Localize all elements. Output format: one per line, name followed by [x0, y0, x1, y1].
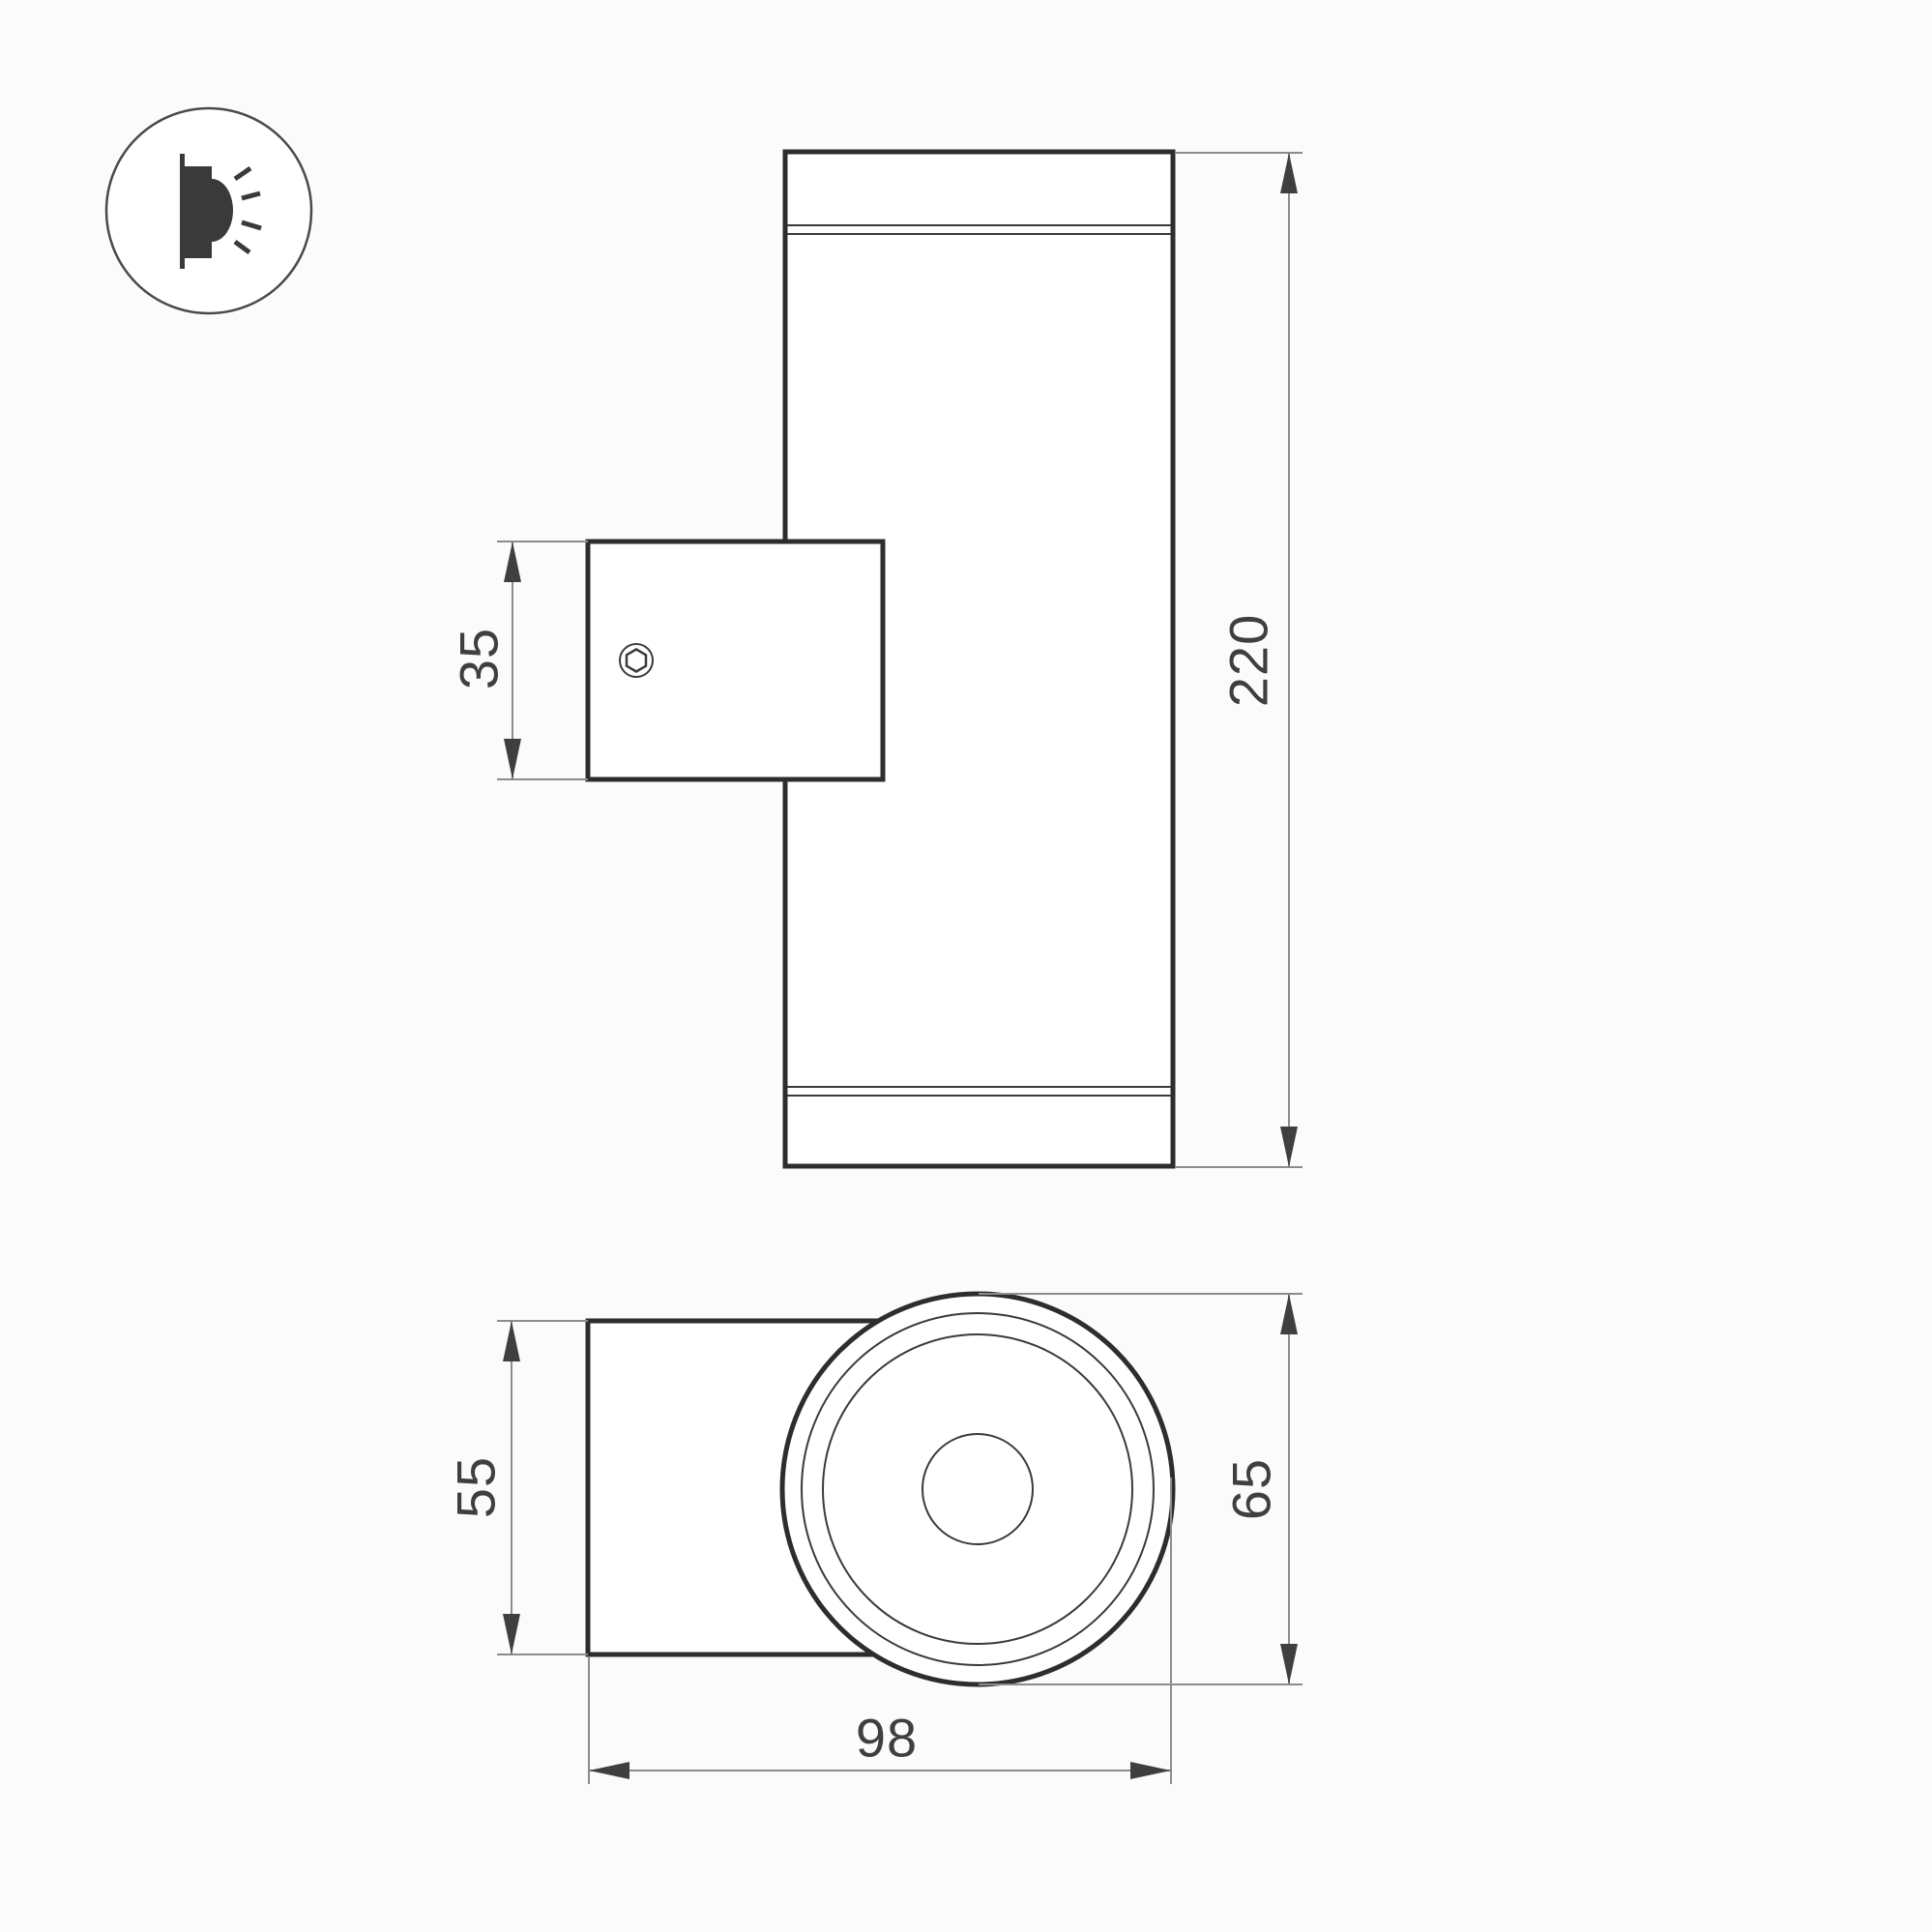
dimension-bracket-depth: 55: [446, 1321, 589, 1654]
arrowhead-down: [503, 1614, 520, 1654]
arrowhead-right: [1130, 1762, 1171, 1779]
dimension-body-height: 220: [1175, 153, 1303, 1167]
icon-wall-line: [180, 154, 185, 269]
technical-drawing-canvas: 35 220 55 65: [0, 0, 1932, 1932]
arrowhead-up: [1280, 153, 1298, 193]
dimension-value-65: 65: [1221, 1458, 1282, 1520]
arrowhead-left: [589, 1762, 629, 1779]
arrowhead-up: [504, 542, 521, 582]
dimension-bracket-height: 35: [449, 542, 589, 779]
arrowhead-down: [1280, 1127, 1298, 1167]
hex-screw-icon: [620, 644, 653, 677]
dimension-value-55: 55: [446, 1456, 507, 1518]
icon-lamp-body: [185, 166, 212, 258]
lamp-cylinder-top-outer: [782, 1294, 1173, 1684]
top-view: [588, 1294, 1173, 1684]
dimension-value-98: 98: [856, 1708, 918, 1769]
arrowhead-up: [503, 1321, 520, 1361]
arrowhead-down: [1280, 1644, 1298, 1684]
wall-light-icon: [106, 108, 311, 313]
arrowhead-up: [1280, 1294, 1298, 1334]
front-view: [588, 152, 1173, 1166]
dimension-value-35: 35: [449, 628, 510, 689]
dimension-value-220: 220: [1218, 614, 1279, 707]
arrowhead-down: [504, 739, 521, 779]
dimension-drawing: 35 220 55 65: [0, 0, 1932, 1932]
